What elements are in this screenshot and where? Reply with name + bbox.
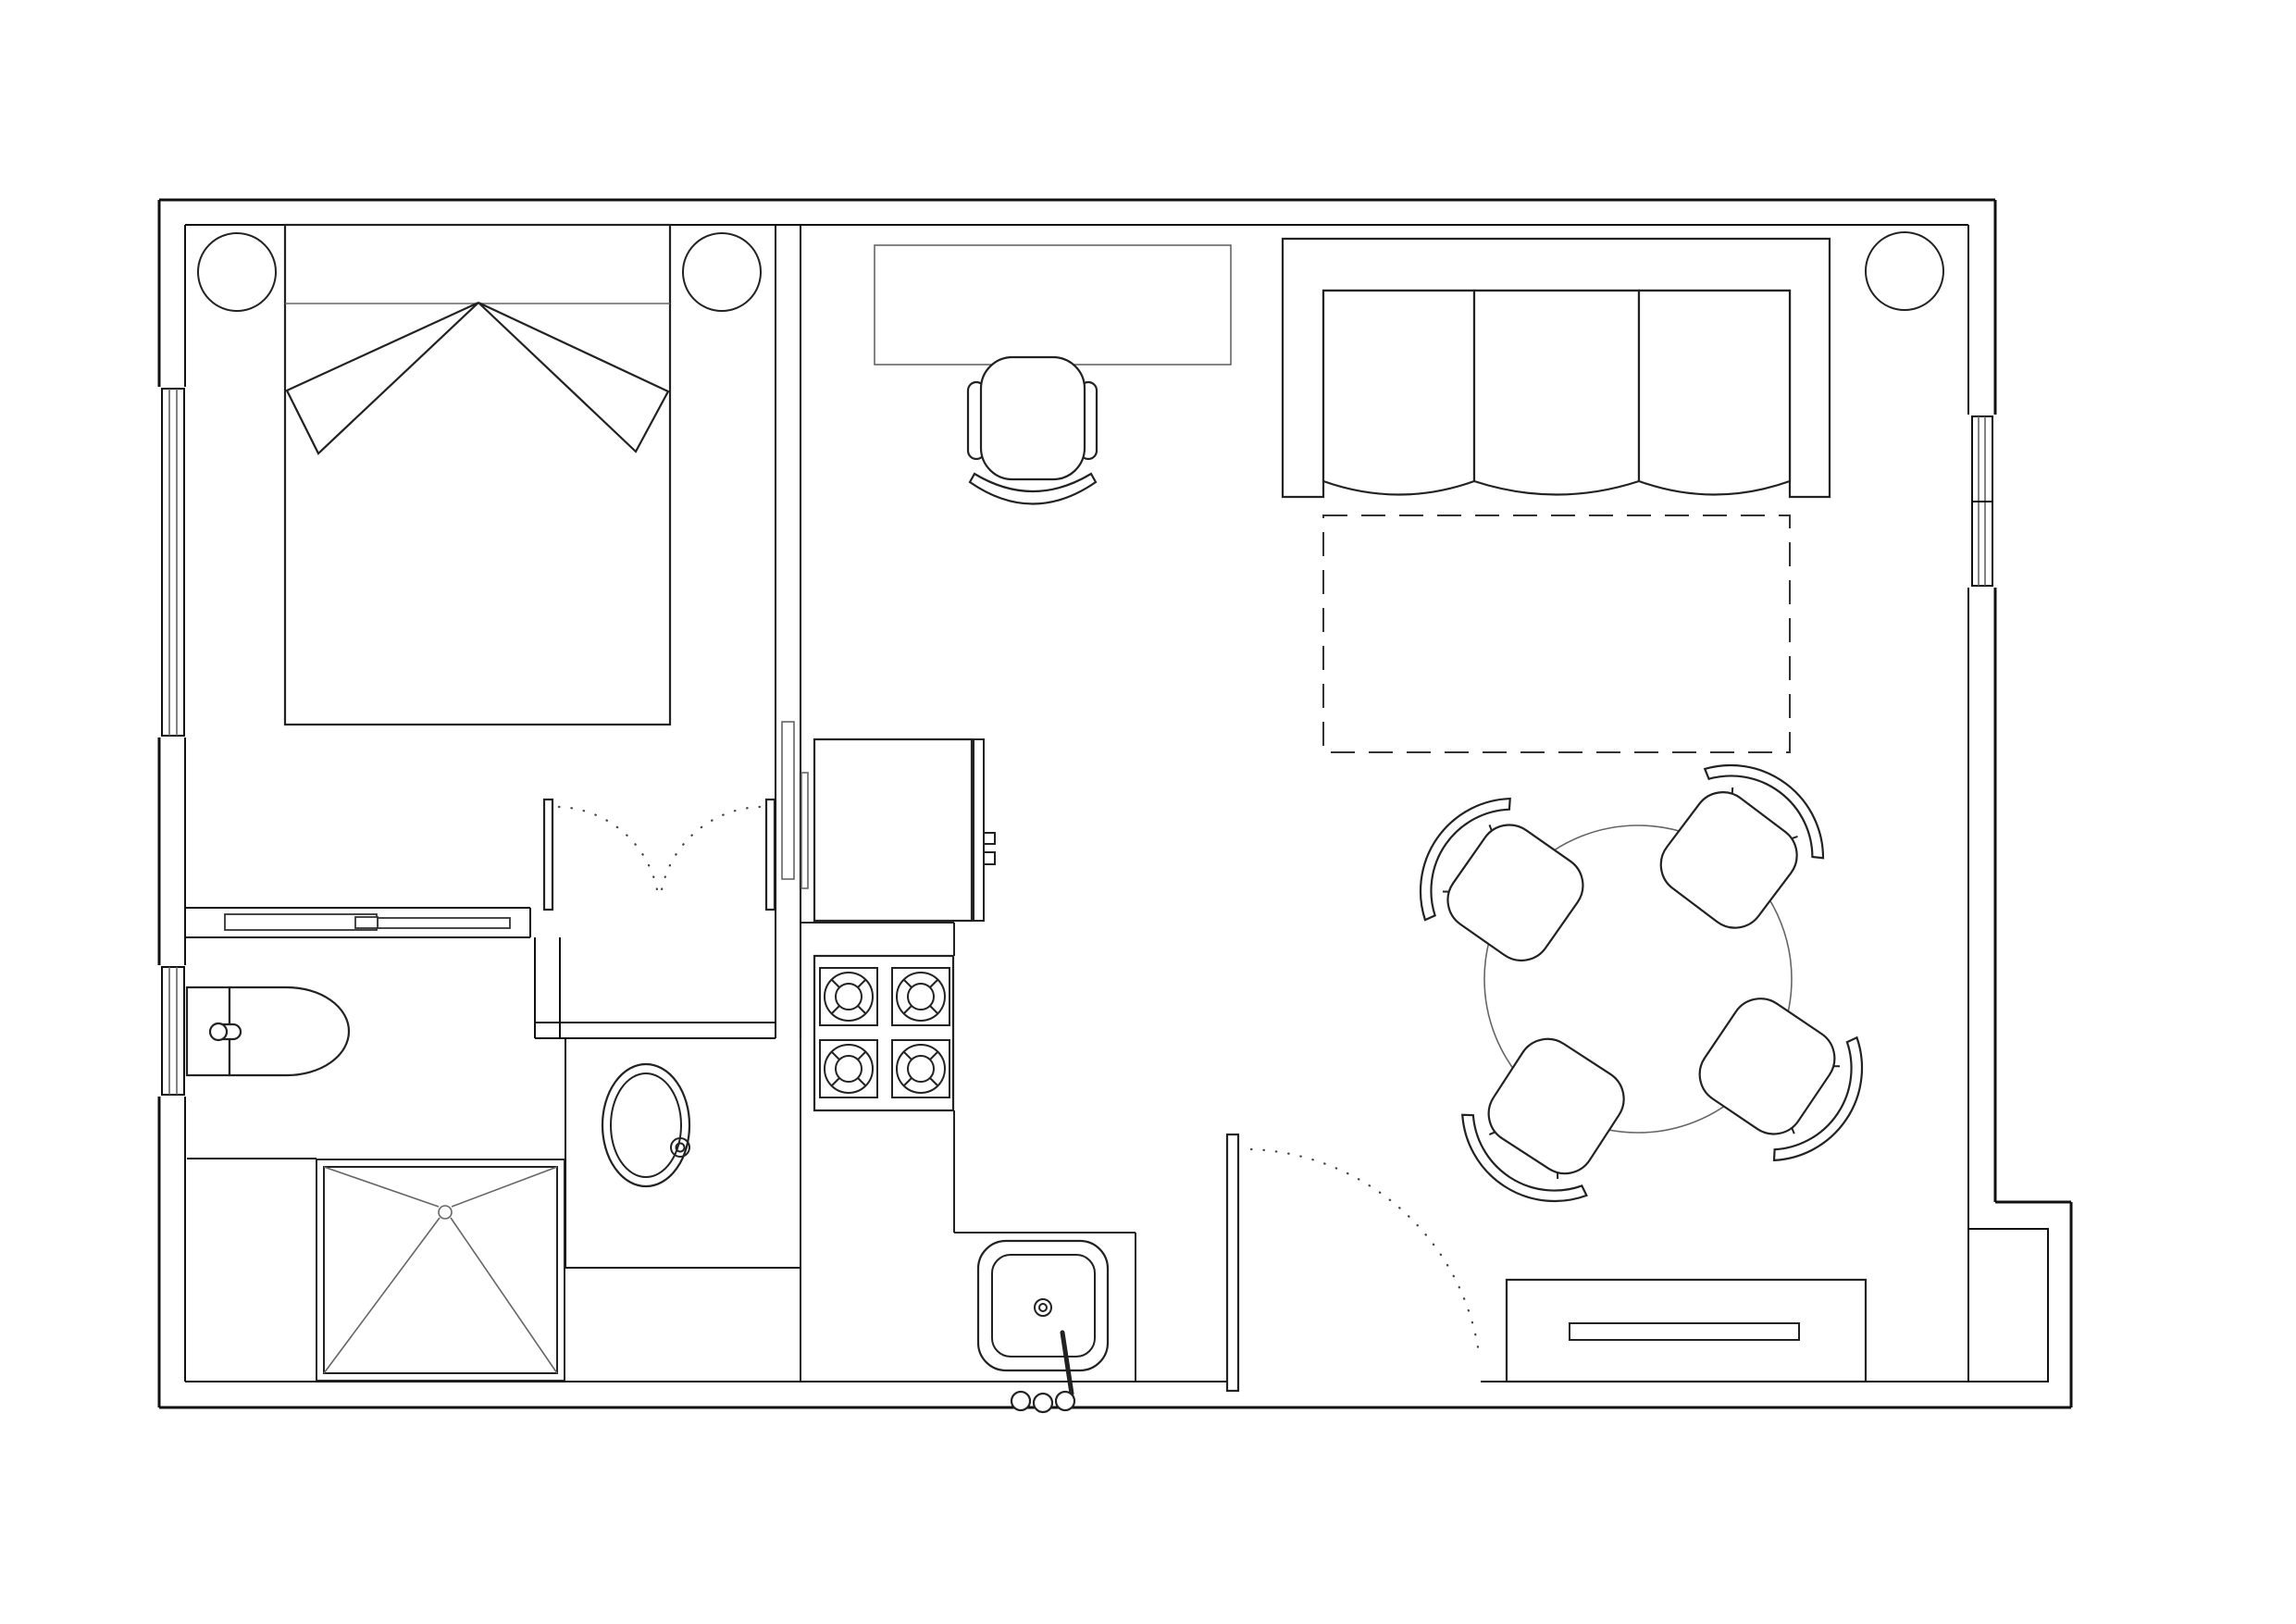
entry-door-leaf [1227, 1134, 1238, 1391]
dining-chair-sw [1442, 1019, 1649, 1227]
wall-pocket-detail [782, 722, 794, 879]
window-west-upper [162, 389, 184, 736]
window-west-lower [162, 967, 184, 1095]
sliding-door-handle [355, 917, 378, 928]
kitchen-knob-3 [1056, 1392, 1074, 1410]
dining-chair-nw [1395, 777, 1604, 986]
toilet-flush-button [210, 1023, 227, 1040]
kitchen-knob-2 [1034, 1394, 1052, 1412]
fridge-handle-1 [984, 833, 995, 844]
bedroom-door-leaf-right [766, 800, 775, 910]
shower-inner [324, 1167, 557, 1373]
shower-drain [439, 1206, 452, 1219]
corner-closet [1968, 1229, 2048, 1382]
shower-diagonals [324, 1167, 557, 1373]
tv-console [1507, 1280, 1866, 1382]
desk-chair-seat [981, 357, 1085, 479]
bedroom-door-swing-right [661, 807, 760, 895]
chair-seat [1649, 780, 1808, 939]
kitchen-knob-1 [1011, 1392, 1030, 1410]
rug-dashed [1323, 515, 1790, 752]
nightstand-lamp-right [683, 233, 761, 311]
sliding-door-panel-left [225, 914, 377, 930]
plant-circle [1866, 232, 1943, 310]
fridge-handle-2 [984, 852, 995, 864]
fridge [814, 739, 972, 921]
sofa-cushion-3 [1639, 291, 1790, 495]
wall-side-detail [801, 773, 808, 888]
floor-plan-page [0, 0, 2296, 1624]
bedroom-door-leaf-left [544, 800, 552, 910]
fridge-side-panel [974, 739, 984, 921]
sliding-door-panel-right [378, 918, 510, 928]
entry-door-swing [1251, 1149, 1479, 1353]
shower-outer [316, 1159, 565, 1381]
sofa-cushion-1 [1323, 291, 1474, 495]
dining-chair-se [1679, 973, 1887, 1181]
stove [814, 956, 953, 1110]
bath-sink-outer [602, 1064, 689, 1186]
sofa-cushion-2 [1474, 291, 1639, 495]
bedroom-door-swing-left [559, 807, 658, 895]
toilet-bowl [230, 987, 349, 1075]
chair-seat [1436, 813, 1595, 973]
dining-chair-ne [1636, 739, 1845, 949]
nightstand-lamp-left [198, 233, 276, 311]
bed [285, 225, 670, 725]
desk-chair [968, 357, 1097, 504]
chair-seat [1688, 987, 1845, 1146]
desk [875, 245, 1231, 365]
chair-seat [1477, 1028, 1634, 1185]
floor-plan-canvas [0, 0, 2296, 1624]
